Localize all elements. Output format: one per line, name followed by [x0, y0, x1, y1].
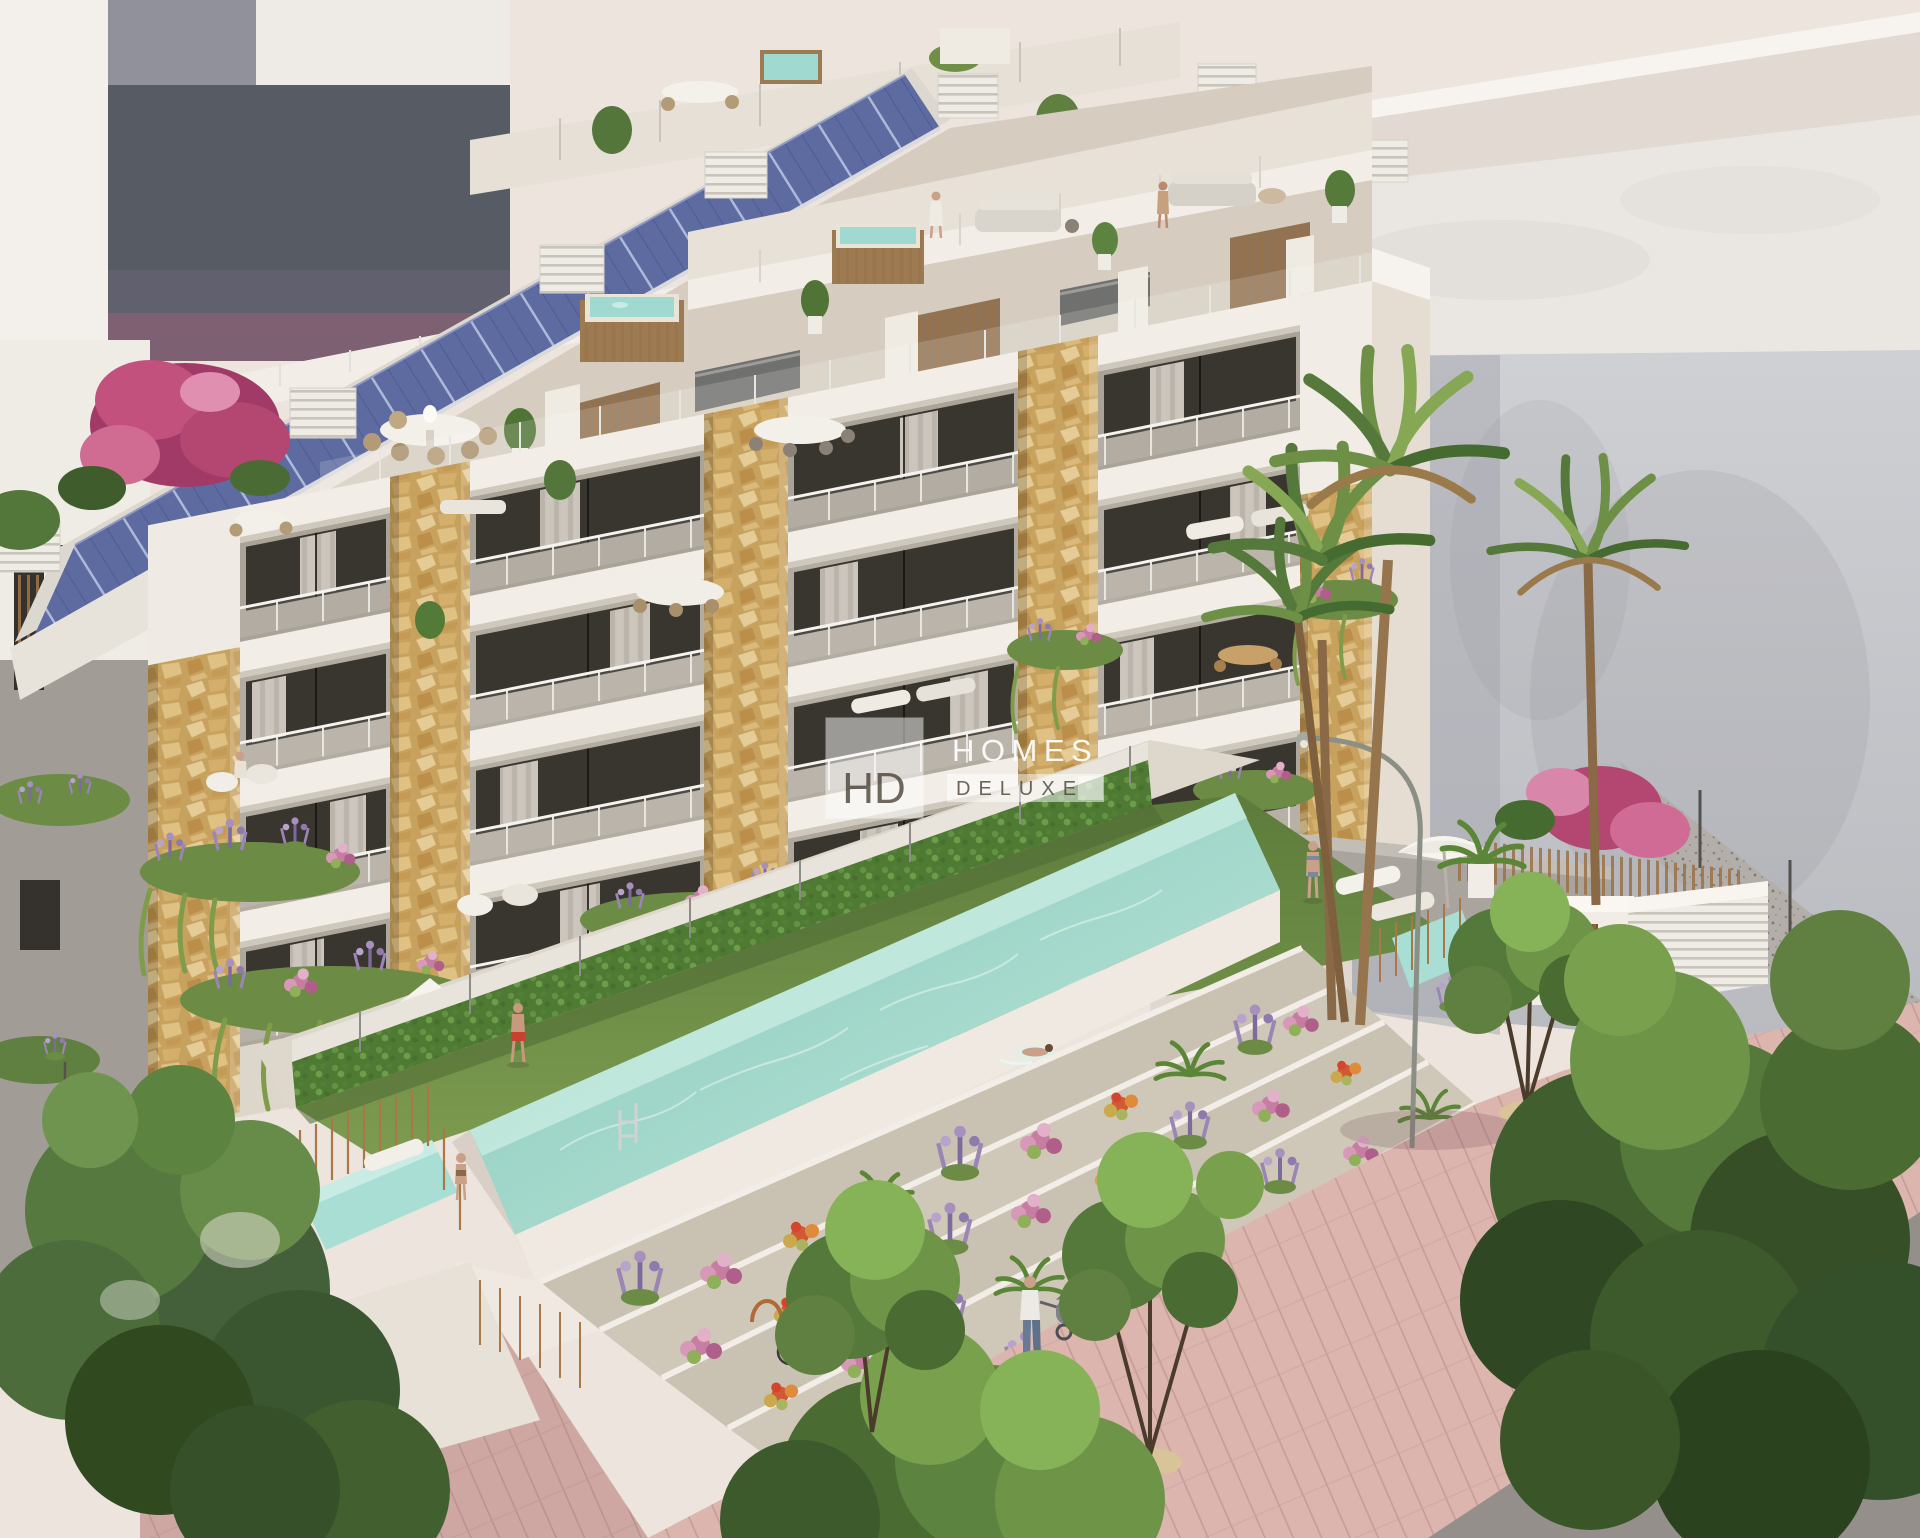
- jacuzzi: [832, 224, 924, 284]
- jacuzzi: [580, 294, 684, 362]
- watermark-title: HOMES: [952, 733, 1098, 768]
- watermark-monogram: HD: [842, 764, 906, 813]
- far-jacuzzi: [762, 52, 820, 82]
- watermark-subtitle: DELUXE: [956, 778, 1084, 800]
- architectural-rendering: HD HOMES DELUXE: [0, 0, 1920, 1538]
